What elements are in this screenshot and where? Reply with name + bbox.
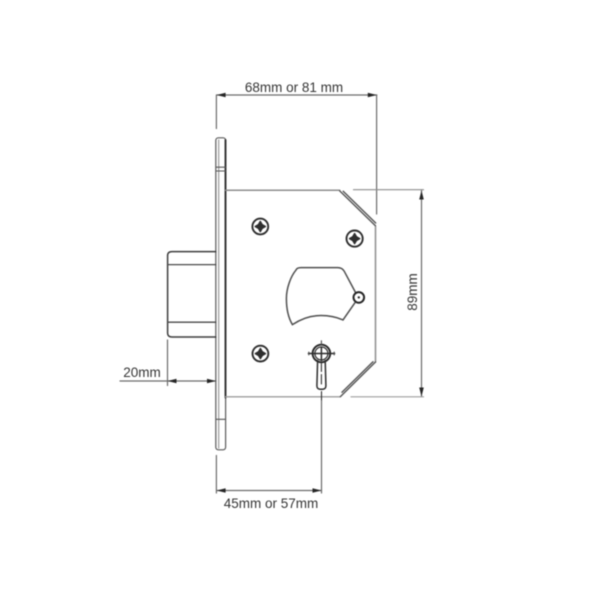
svg-text:68mm or 81 mm: 68mm or 81 mm (245, 80, 343, 95)
svg-text:20mm: 20mm (123, 365, 161, 380)
svg-text:89mm: 89mm (405, 273, 420, 311)
svg-text:45mm or 57mm: 45mm or 57mm (224, 496, 319, 511)
